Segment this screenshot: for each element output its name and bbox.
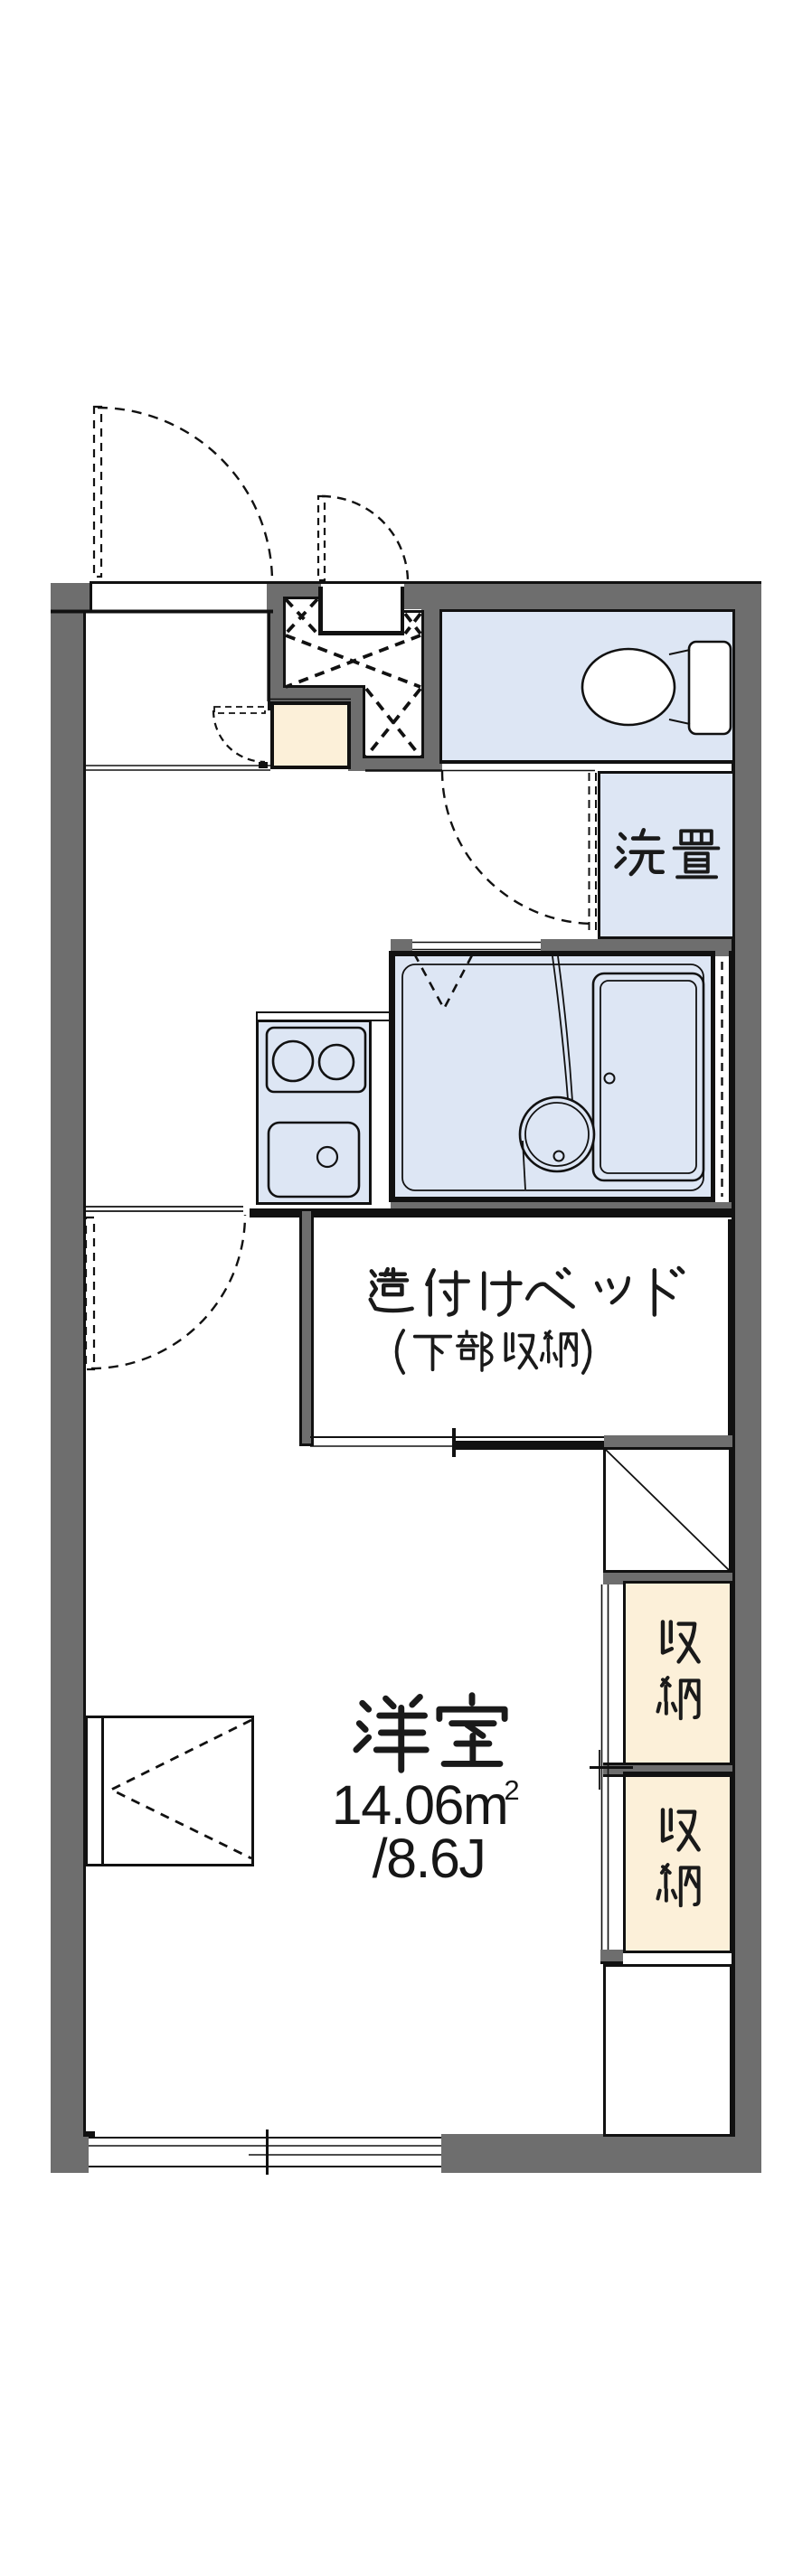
svg-text:2: 2 [504, 1774, 519, 1806]
svg-text:/8.6J: /8.6J [373, 1828, 486, 1889]
svg-text:14.06m: 14.06m [332, 1774, 507, 1836]
